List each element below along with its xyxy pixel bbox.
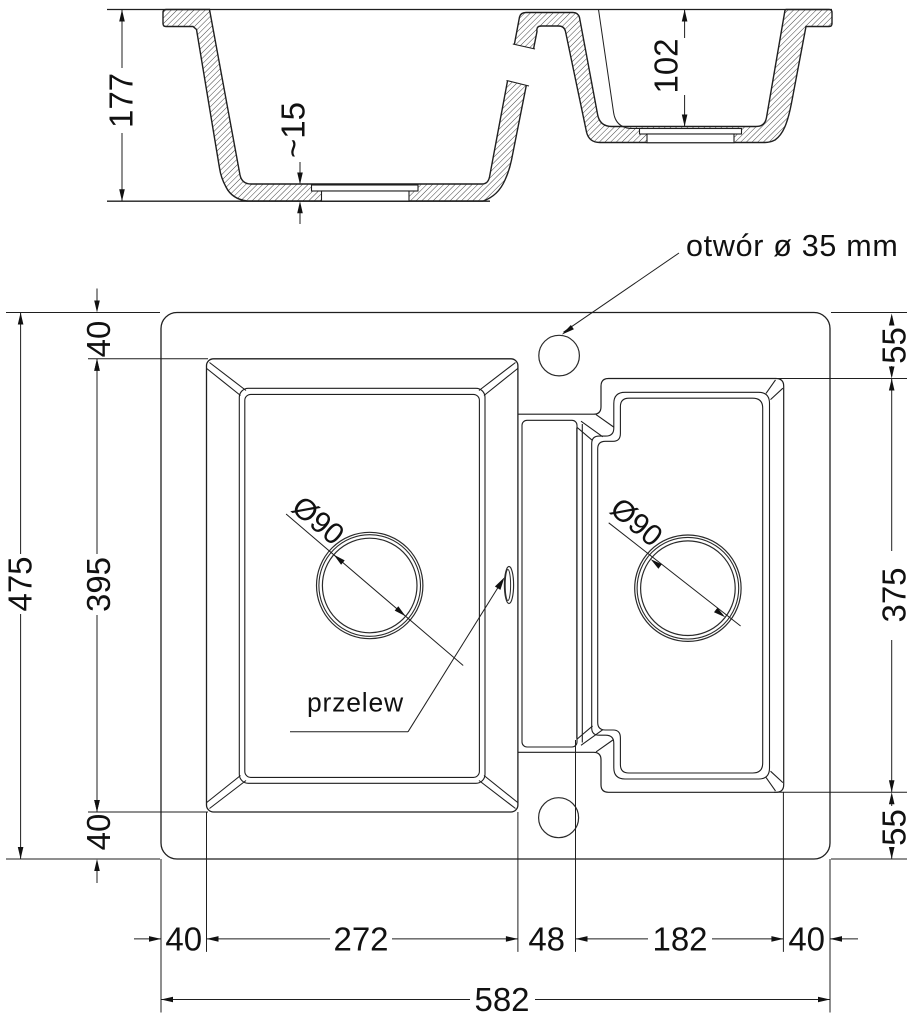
svg-text:otwór ø 35 mm: otwór ø 35 mm	[686, 229, 898, 263]
svg-text:48: 48	[528, 920, 565, 957]
svg-text:~15: ~15	[275, 102, 312, 158]
svg-text:55: 55	[876, 809, 913, 846]
svg-text:582: 582	[474, 981, 529, 1018]
svg-text:40: 40	[80, 321, 117, 358]
svg-text:395: 395	[80, 557, 117, 612]
svg-text:272: 272	[333, 920, 388, 957]
svg-text:177: 177	[103, 73, 140, 128]
svg-text:40: 40	[80, 814, 117, 851]
svg-text:475: 475	[2, 556, 39, 611]
svg-text:40: 40	[165, 920, 202, 957]
svg-text:55: 55	[876, 327, 913, 364]
svg-text:375: 375	[876, 567, 913, 622]
svg-text:przelew: przelew	[307, 688, 404, 718]
svg-text:182: 182	[652, 920, 707, 957]
svg-text:40: 40	[788, 920, 825, 957]
svg-text:102: 102	[648, 38, 685, 93]
